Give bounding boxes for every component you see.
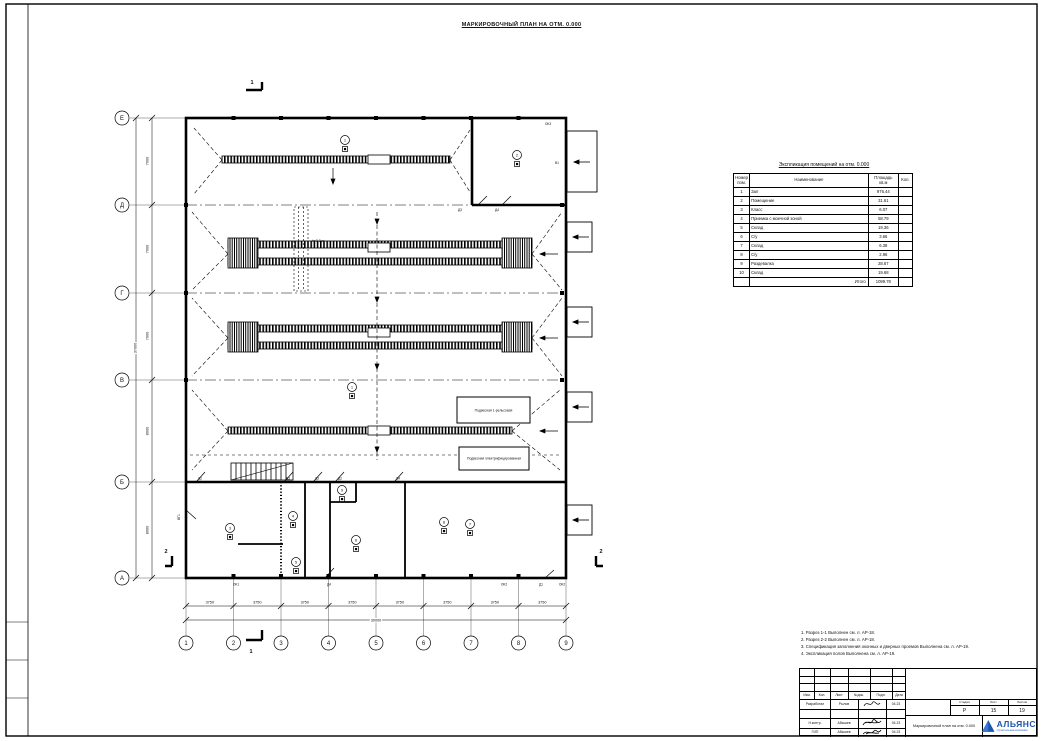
tb-signature-3 bbox=[858, 718, 886, 728]
schedule-header-area: Площадь кв.м bbox=[868, 174, 898, 188]
height-shaft bbox=[294, 207, 308, 291]
opening-label: ОК3 bbox=[545, 122, 551, 126]
row-axis-d: Д bbox=[120, 203, 124, 209]
table-row: 9Раздевалка28.67 bbox=[734, 260, 913, 269]
tb-name-1: Рылов bbox=[830, 699, 858, 709]
opening-label: Д4 bbox=[396, 477, 400, 481]
section-label: 2 bbox=[599, 549, 602, 555]
tb-signature-1 bbox=[858, 699, 886, 709]
opening-labels: ОК3 В1 Д3 Д4 Д2 Д3 Д3 Д2 Д4 ВГ1 ОК1 Д4 О… bbox=[177, 122, 565, 587]
titleblock-right: Стадия Лист Листов Р 15 19 Маркировочный… bbox=[906, 669, 1036, 737]
opening-label: ОК2 bbox=[501, 583, 507, 587]
opening-label: Д3 bbox=[315, 477, 319, 481]
table-row: 1Зал976.44 bbox=[734, 188, 913, 197]
stage-value: Р bbox=[950, 706, 979, 715]
table-row: 4Приемка с моечной зоной58.79 bbox=[734, 215, 913, 224]
dim-bottom-5: 3750 bbox=[396, 601, 404, 605]
axis-dashdot-lines bbox=[186, 205, 566, 380]
row-axis-e: Е bbox=[120, 116, 124, 122]
opening-label: Д2 bbox=[338, 477, 342, 481]
company-logo: АЛЬЯНС строительная компания bbox=[982, 715, 1036, 737]
opening-label: Д3 bbox=[286, 477, 290, 481]
opening-label: Д2 bbox=[198, 477, 202, 481]
exit-arrows bbox=[573, 160, 590, 522]
logo-triangle-icon bbox=[982, 720, 995, 732]
tb-col-podp: Подп. bbox=[870, 691, 892, 699]
title-block: Изм. Кол. Лист №док. Подп. Дата Разработ… bbox=[799, 668, 1037, 736]
room-markers bbox=[226, 136, 522, 574]
note-line: 2. Разрез 2-2 Выполнен см. л. АР-18. bbox=[801, 637, 1036, 644]
tb-date-3: 04.23 bbox=[886, 718, 906, 728]
stairs bbox=[231, 463, 293, 480]
section-mark-labels: 1 1 2 2 bbox=[164, 80, 602, 655]
table-row: 6С/у3.66 bbox=[734, 233, 913, 242]
tb-name-3: Абышев bbox=[830, 718, 858, 728]
table-row: 3Класс6.07 bbox=[734, 206, 913, 215]
opening-label: ОК1 bbox=[233, 583, 239, 587]
schedule-total-value: 1099.78 bbox=[868, 278, 898, 287]
callout-2: Подвесная электрифицированная bbox=[467, 457, 521, 461]
tb-role-2 bbox=[800, 709, 830, 719]
tb-col-data: Дата bbox=[892, 691, 906, 699]
section-label: 1 bbox=[249, 649, 252, 655]
dimension-labels: 7000 7000 7000 8000 8000 37000 3750 3750… bbox=[133, 157, 546, 623]
table-row: 2Помещение31.61 bbox=[734, 197, 913, 206]
schedule-header-row: Номер пом. Наименование Площадь кв.м Кол… bbox=[734, 174, 913, 188]
schedule-header-name: Наименование bbox=[750, 174, 869, 188]
note-line: 3. Спецификация заполнения оконных и две… bbox=[801, 644, 1036, 651]
dim-bottom-8: 3750 bbox=[538, 601, 546, 605]
tb-date-4: 04.23 bbox=[886, 728, 906, 738]
room-schedule-title: Экспликация помещений на отм. 0.000 bbox=[733, 162, 915, 168]
sheet-label: Лист bbox=[979, 699, 1008, 706]
room-marker-numbers: 1 2 1 3 4 5 6 9 7 8 bbox=[229, 138, 519, 565]
schedule-header-num: Номер пом. bbox=[734, 174, 750, 188]
document-name: Маркировочный план на отм. 0.000 bbox=[906, 715, 982, 737]
dim-left-total: 37000 bbox=[133, 343, 137, 354]
schedule-total-label: Итого bbox=[750, 278, 869, 287]
notes-list: 1. Разрез 1-1 Выполнен см. л. АР-18.2. Р… bbox=[801, 630, 1036, 658]
row-axis-v: В bbox=[120, 378, 124, 384]
tb-col-izm: Изм. bbox=[800, 691, 814, 699]
sheet-title: МАРКИРОВОЧНЫЙ ПЛАН НА ОТМ. 0.000 bbox=[0, 22, 1043, 28]
room-schedule-table: Номер пом. Наименование Площадь кв.м Кол… bbox=[733, 173, 913, 287]
dim-bottom-total: 30000 bbox=[371, 618, 382, 622]
row-axis-b: Б bbox=[120, 480, 124, 486]
opening-label: Д3 bbox=[458, 208, 462, 212]
stage-label: Стадия bbox=[950, 699, 979, 706]
company-subtitle: строительная компания bbox=[997, 729, 1036, 732]
row-axis-a: А bbox=[120, 576, 124, 582]
dim-bottom-6: 3750 bbox=[443, 601, 451, 605]
drawing-sheet: 7000 7000 7000 8000 8000 37000 3750 3750… bbox=[0, 0, 1043, 741]
tb-signature-4 bbox=[858, 728, 886, 738]
sheets-value: 19 bbox=[1008, 706, 1036, 715]
dim-bottom-4: 3750 bbox=[348, 601, 356, 605]
schedule-total-row: Итого 1099.78 bbox=[734, 278, 913, 287]
opening-label: Д1 bbox=[539, 583, 543, 587]
section-label: 2 bbox=[164, 549, 167, 555]
dim-left-4: 8000 bbox=[146, 427, 150, 435]
dim-bottom-7: 3750 bbox=[491, 601, 499, 605]
opening-label: Д4 bbox=[495, 208, 499, 212]
section-label: 1 bbox=[250, 80, 253, 86]
tb-role-1: Разработал bbox=[800, 699, 830, 709]
dim-left-1: 7000 bbox=[146, 157, 150, 165]
callout-1: Подвесная 1-рельсовая bbox=[475, 409, 513, 413]
sheet-frame bbox=[6, 4, 1037, 736]
note-line: 1. Разрез 1-1 Выполнен см. л. АР-18. bbox=[801, 630, 1036, 637]
dim-bottom-2: 3750 bbox=[253, 601, 261, 605]
schedule-header-qty: Кол. bbox=[898, 174, 912, 188]
axis-bubbles bbox=[115, 111, 573, 650]
titleblock-left: Изм. Кол. Лист №док. Подп. Дата Разработ… bbox=[800, 669, 906, 737]
height-note: h=3,2 м bbox=[312, 239, 325, 243]
section-marks bbox=[165, 82, 603, 640]
tb-col-kol: Кол. bbox=[814, 691, 830, 699]
tb-name-4: Абышев bbox=[830, 728, 858, 738]
tb-col-list: Лист bbox=[830, 691, 848, 699]
dim-left-2: 7000 bbox=[146, 245, 150, 253]
tb-date-1: 04.23 bbox=[886, 699, 906, 709]
dim-left-5: 8000 bbox=[146, 526, 150, 534]
tb-role-4: ГИП bbox=[800, 728, 830, 738]
table-row: 8С/у2.96 bbox=[734, 251, 913, 260]
extension-lines bbox=[130, 118, 566, 636]
room-schedule: Экспликация помещений на отм. 0.000 Номе… bbox=[733, 162, 915, 287]
note-line: 4. Экспликация полов Выполнена см. л. АР… bbox=[801, 651, 1036, 658]
sheets-label: Листов bbox=[1008, 699, 1036, 706]
equipment-tags bbox=[368, 155, 390, 435]
opening-label: ОК2 bbox=[559, 583, 565, 587]
dim-bottom-3: 3750 bbox=[301, 601, 309, 605]
table-row: 7Склад6.38 bbox=[734, 242, 913, 251]
table-row: 5Склад19.36 bbox=[734, 224, 913, 233]
dim-left-3: 7000 bbox=[146, 332, 150, 340]
tambours bbox=[567, 131, 597, 535]
opening-label: Д4 bbox=[327, 583, 331, 587]
opening-label: ВГ1 bbox=[177, 514, 181, 520]
dim-bottom-1: 3750 bbox=[206, 601, 214, 605]
opening-label: В1 bbox=[555, 161, 559, 165]
tb-col-ndok: №док. bbox=[848, 691, 870, 699]
table-row: 10Склад19.68 bbox=[734, 269, 913, 278]
tb-name-2 bbox=[830, 709, 858, 719]
sheet-value: 15 bbox=[979, 706, 1008, 715]
tb-role-3: Н.контр. bbox=[800, 718, 830, 728]
